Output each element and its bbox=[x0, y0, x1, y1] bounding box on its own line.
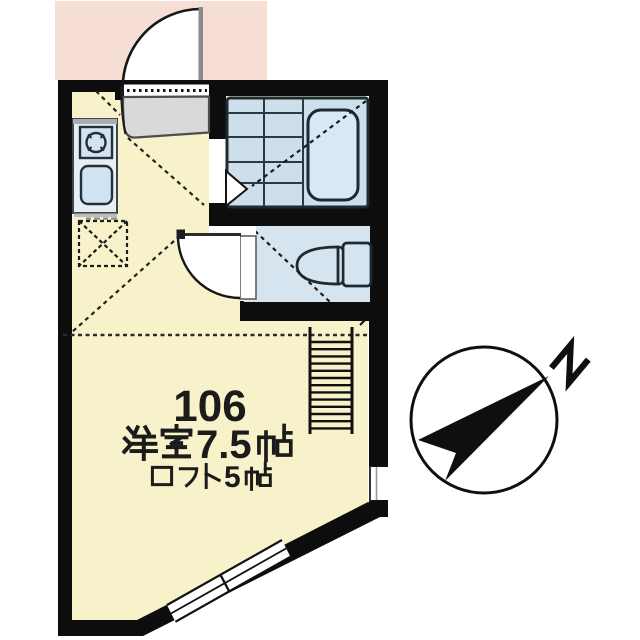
svg-text:5: 5 bbox=[224, 461, 241, 494]
